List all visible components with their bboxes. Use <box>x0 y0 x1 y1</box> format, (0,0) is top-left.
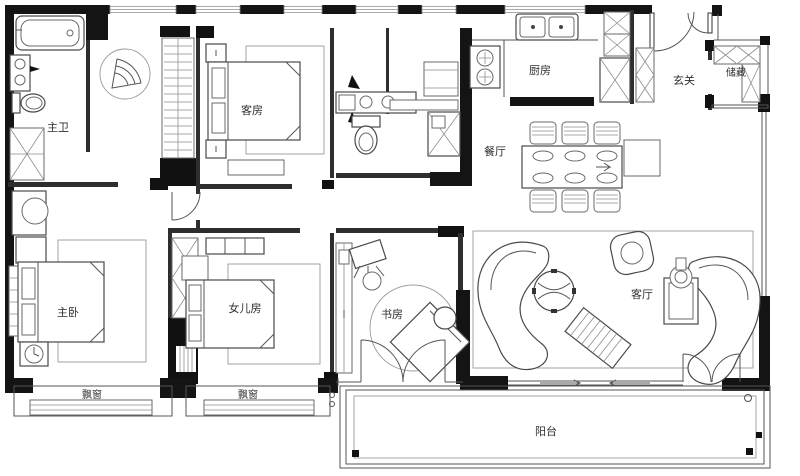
window-icon <box>356 5 398 14</box>
shoe-cabinet-icon <box>636 48 654 102</box>
window-icon <box>110 5 176 14</box>
floor-plan-drawing: 主卫 客房 <box>0 0 800 476</box>
bookshelf-icon <box>336 243 352 373</box>
shelf-icon <box>206 238 264 254</box>
toilet-icon <box>352 116 380 154</box>
room-label-living: 客厅 <box>631 287 653 301</box>
utility-cabinet-icon <box>424 62 458 96</box>
bathroom-vanity-icon <box>10 55 40 91</box>
bay-window-daughter: 飘窗 <box>186 386 330 416</box>
room-label-study: 书房 <box>381 308 403 321</box>
sliding-door-icon <box>508 380 683 386</box>
room-master-bedroom: 主卧 <box>9 191 146 366</box>
stove-icon <box>470 46 500 88</box>
bed-icon <box>18 262 104 342</box>
chair-icon <box>434 307 456 329</box>
fridge-icon <box>600 58 630 102</box>
fan-chair-icon <box>112 59 141 88</box>
room-label-master-bedroom: 主卧 <box>57 306 79 319</box>
bed-icon <box>208 62 300 140</box>
kitchen-sink-icon <box>516 14 578 40</box>
tall-cabinet-icon <box>604 12 630 56</box>
dressing-area <box>100 38 194 158</box>
room-label-storage: 储藏 <box>726 66 746 79</box>
faucet-icon <box>348 75 360 89</box>
bathtub-icon <box>16 16 84 50</box>
room-label-bay-2: 飘窗 <box>238 388 258 401</box>
nightstand-icon <box>206 44 226 62</box>
vanity-desk-icon <box>12 191 48 235</box>
room-label-balcony: 阳台 <box>535 424 557 438</box>
room-guest: 客房 <box>206 44 324 175</box>
toilet-icon <box>12 93 45 113</box>
room-master-bath: 主卫 <box>10 16 84 180</box>
slatted-bench-icon <box>565 308 631 369</box>
room-balcony: 阳台 <box>330 386 771 468</box>
room-label-dining: 餐厅 <box>484 144 506 158</box>
window-icon <box>196 5 240 14</box>
window-icon <box>284 5 322 14</box>
wardrobe-icon <box>162 38 194 158</box>
clock-table-icon <box>20 342 48 366</box>
room-entry: 玄关 <box>636 48 695 102</box>
window-icon <box>505 5 585 14</box>
ledge <box>390 100 458 110</box>
desk-icon <box>182 256 208 280</box>
room-label-kitchen: 厨房 <box>529 64 551 77</box>
room-dining: 餐厅 <box>484 122 660 212</box>
room-label-bay-1: 飘窗 <box>82 388 102 401</box>
side-table <box>624 140 660 176</box>
room-label-entry: 玄关 <box>673 73 695 87</box>
armchair-icon <box>608 229 655 276</box>
washer-icon <box>428 112 460 156</box>
bench-icon <box>228 160 284 175</box>
room-label-guest: 客房 <box>241 103 263 117</box>
room-label-master-bath: 主卫 <box>47 121 69 134</box>
room-daughter: 女儿房 <box>172 238 320 372</box>
room-storage: 储藏 <box>714 46 760 102</box>
nightstand-icon <box>206 140 226 158</box>
room-label-daughter: 女儿房 <box>229 301 262 315</box>
easel-icon <box>349 240 386 290</box>
second-bath <box>336 62 460 156</box>
entry-door-icon <box>650 12 712 51</box>
room-living: 客厅 <box>473 229 760 384</box>
window-icon <box>422 5 456 14</box>
shower-icon <box>10 128 44 180</box>
window-hatch <box>176 346 196 372</box>
room-study: 书房 <box>336 240 470 382</box>
floor-plan-page: 主卫 客房 <box>0 0 800 476</box>
curved-sofa-left-icon <box>478 242 549 369</box>
bay-window-master: 飘窗 <box>14 386 172 416</box>
curved-sofa-right-icon <box>688 257 760 385</box>
dresser-icon <box>16 237 46 263</box>
room-kitchen: 厨房 <box>470 12 630 102</box>
